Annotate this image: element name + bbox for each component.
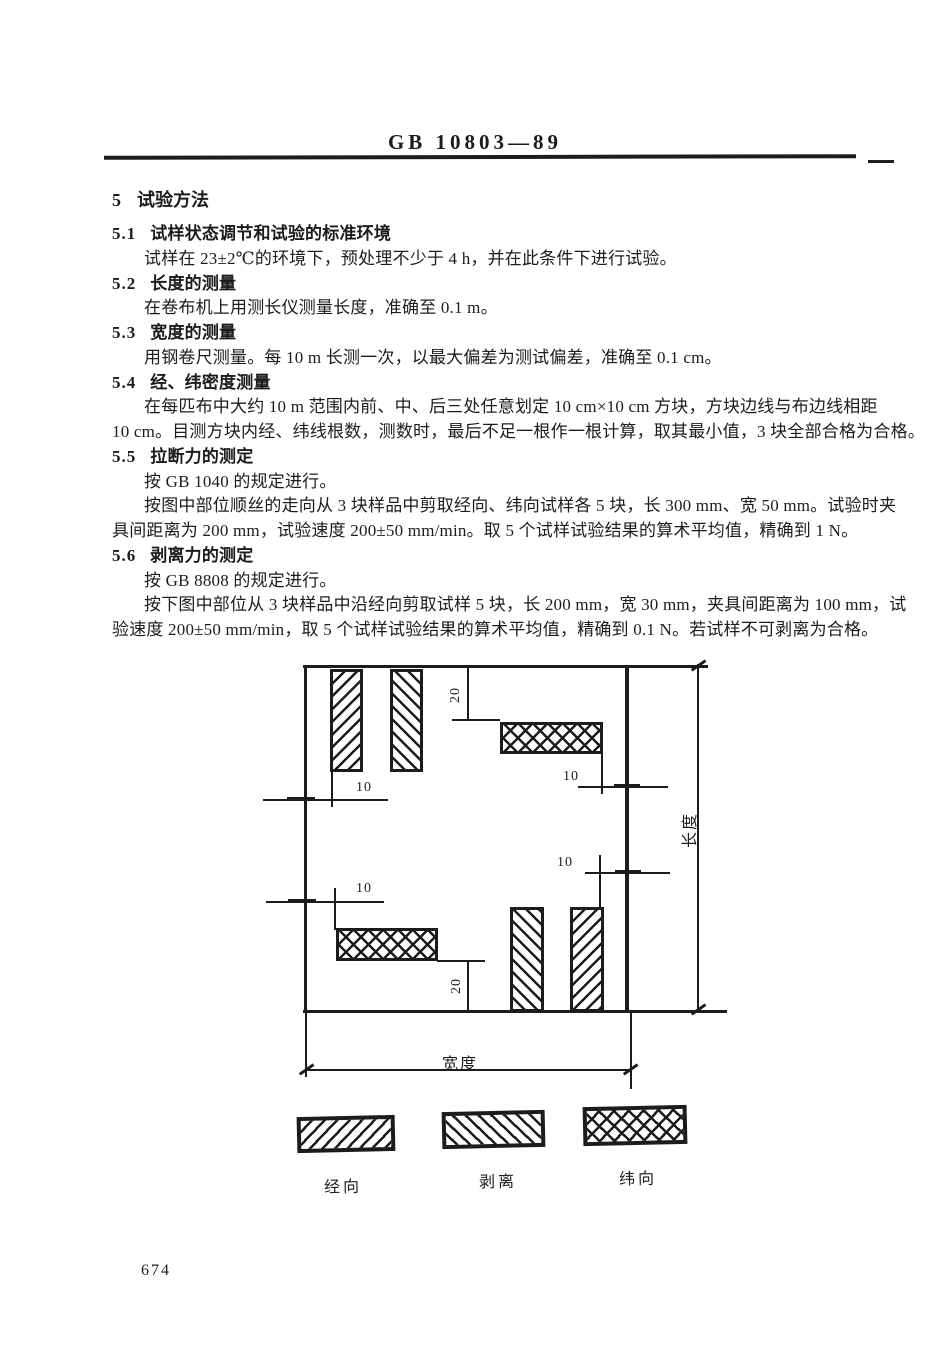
dim10-lowerleft-label: 10	[349, 881, 379, 897]
width-ext-right	[630, 1013, 632, 1089]
specimen-weft-bottom-left	[336, 928, 438, 961]
legend-warp-swatch	[297, 1115, 396, 1153]
dim10-upperleft-hline	[263, 799, 388, 801]
width-axis-label: 宽度	[430, 1050, 490, 1074]
dim10-upperright-vline	[601, 754, 603, 794]
square-right-edge	[625, 665, 629, 1013]
dim10-upperleft-edge-tick	[287, 797, 315, 801]
dim20-bottom-vline	[467, 961, 469, 1012]
dim20-bottom-hline	[437, 960, 485, 962]
legend-peel-label: 剥离	[468, 1167, 528, 1192]
page-number: 674	[141, 1262, 171, 1280]
dim10-midright-label: 10	[550, 855, 580, 871]
dim20-top-hline	[452, 719, 500, 721]
legend-peel-swatch	[442, 1110, 546, 1149]
specimen-cutting-diagram: 长度 宽度 20 10 10 10	[0, 0, 950, 1348]
dim20-bottom-label: 20	[449, 972, 465, 1000]
dim10-midright-vline	[599, 855, 601, 908]
document-page: GB 10803—89 5试验方法 5.1试样状态调节和试验的标准环境 试样在 …	[0, 0, 950, 1348]
dim20-top-label: 20	[448, 681, 464, 709]
legend-weft-swatch	[583, 1105, 688, 1146]
dim10-upperleft-label: 10	[349, 780, 379, 796]
legend-weft-label: 纬向	[608, 1164, 668, 1189]
dim20-top-vline	[467, 668, 469, 721]
dim10-upperleft-vline	[331, 772, 333, 807]
dim10-upperright-edge-tick	[614, 784, 640, 788]
specimen-weft-top-right	[500, 722, 603, 754]
square-left-edge	[304, 665, 307, 1013]
specimen-warp-top-left	[330, 669, 363, 772]
dim10-upperright-label: 10	[556, 769, 586, 785]
length-axis-label: 长度	[676, 810, 700, 850]
square-top-edge	[303, 665, 708, 668]
dim10-midright-edge-tick	[615, 870, 641, 874]
legend-warp-label: 经向	[313, 1172, 373, 1197]
dim10-lowerleft-hline	[266, 901, 384, 903]
specimen-warp-bottom-right	[570, 907, 604, 1012]
specimen-peel-top-left	[390, 669, 423, 772]
dim10-lowerleft-vline	[334, 888, 336, 930]
dim10-lowerleft-edge-tick	[288, 899, 316, 903]
specimen-peel-bottom-right	[510, 907, 544, 1012]
